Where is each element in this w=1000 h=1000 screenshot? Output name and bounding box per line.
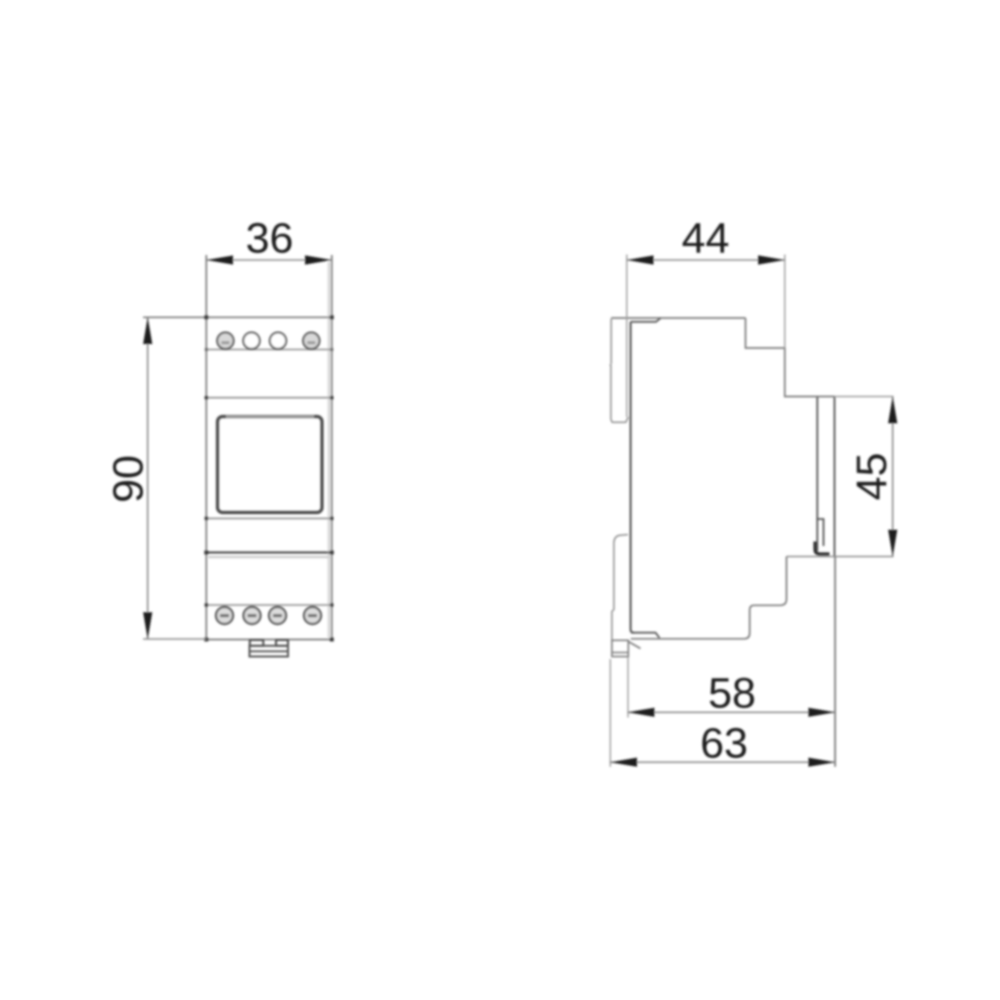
svg-text:90: 90 [105, 455, 153, 503]
svg-text:45: 45 [848, 453, 896, 501]
svg-text:36: 36 [246, 214, 294, 262]
svg-text:44: 44 [682, 214, 730, 262]
svg-text:63: 63 [700, 720, 748, 768]
svg-text:58: 58 [708, 670, 756, 718]
